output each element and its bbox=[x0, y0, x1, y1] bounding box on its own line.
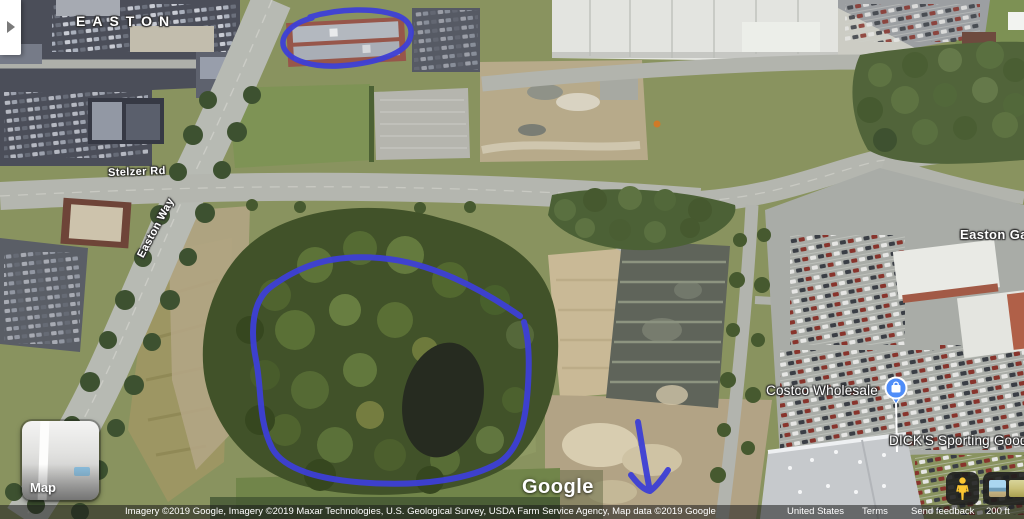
imagery-credits: Imagery ©2019 Google, Imagery ©2019 Maxa… bbox=[125, 505, 716, 519]
map-type-toggle[interactable]: Map bbox=[22, 421, 99, 500]
area-label-easton-gateway: Easton Ga bbox=[960, 227, 1024, 242]
pegman-button[interactable] bbox=[946, 472, 979, 505]
attribution-region: United States bbox=[787, 505, 844, 519]
satellite-map[interactable] bbox=[0, 0, 1024, 519]
terms-link[interactable]: Terms bbox=[862, 505, 888, 519]
road-label-stelzer-rd: Stelzer Rd bbox=[108, 165, 166, 179]
poi-label-costco[interactable]: Costco Wholesale bbox=[766, 383, 878, 398]
street-photo-thumbnail-field[interactable] bbox=[1009, 480, 1024, 497]
scale-indicator[interactable]: 200 ft bbox=[986, 505, 1010, 519]
photo-thumbnails-tray[interactable] bbox=[983, 472, 1024, 505]
expand-side-panel-button[interactable] bbox=[0, 0, 21, 55]
restaurant-building bbox=[60, 198, 131, 249]
send-feedback-link[interactable]: Send feedback bbox=[911, 505, 974, 519]
abandoned-parking bbox=[606, 240, 730, 408]
office-building bbox=[286, 17, 406, 67]
chevron-right-icon bbox=[7, 21, 15, 33]
poi-label-dicks[interactable]: DICK'S Sporting Good bbox=[889, 433, 1024, 448]
street-photo-thumbnail-sky[interactable] bbox=[989, 480, 1006, 497]
left-parking bbox=[0, 238, 88, 352]
google-watermark: Google bbox=[522, 476, 594, 499]
area-label-easton: EASTON bbox=[76, 13, 176, 29]
map-toggle-label: Map bbox=[30, 480, 56, 495]
attribution-bar: Imagery ©2019 Google, Imagery ©2019 Maxa… bbox=[0, 505, 1024, 519]
google-maps-satellite-view: { "colors": { "annotation_blue": "#3d3fd… bbox=[0, 0, 1024, 519]
pegman-icon bbox=[955, 477, 970, 501]
